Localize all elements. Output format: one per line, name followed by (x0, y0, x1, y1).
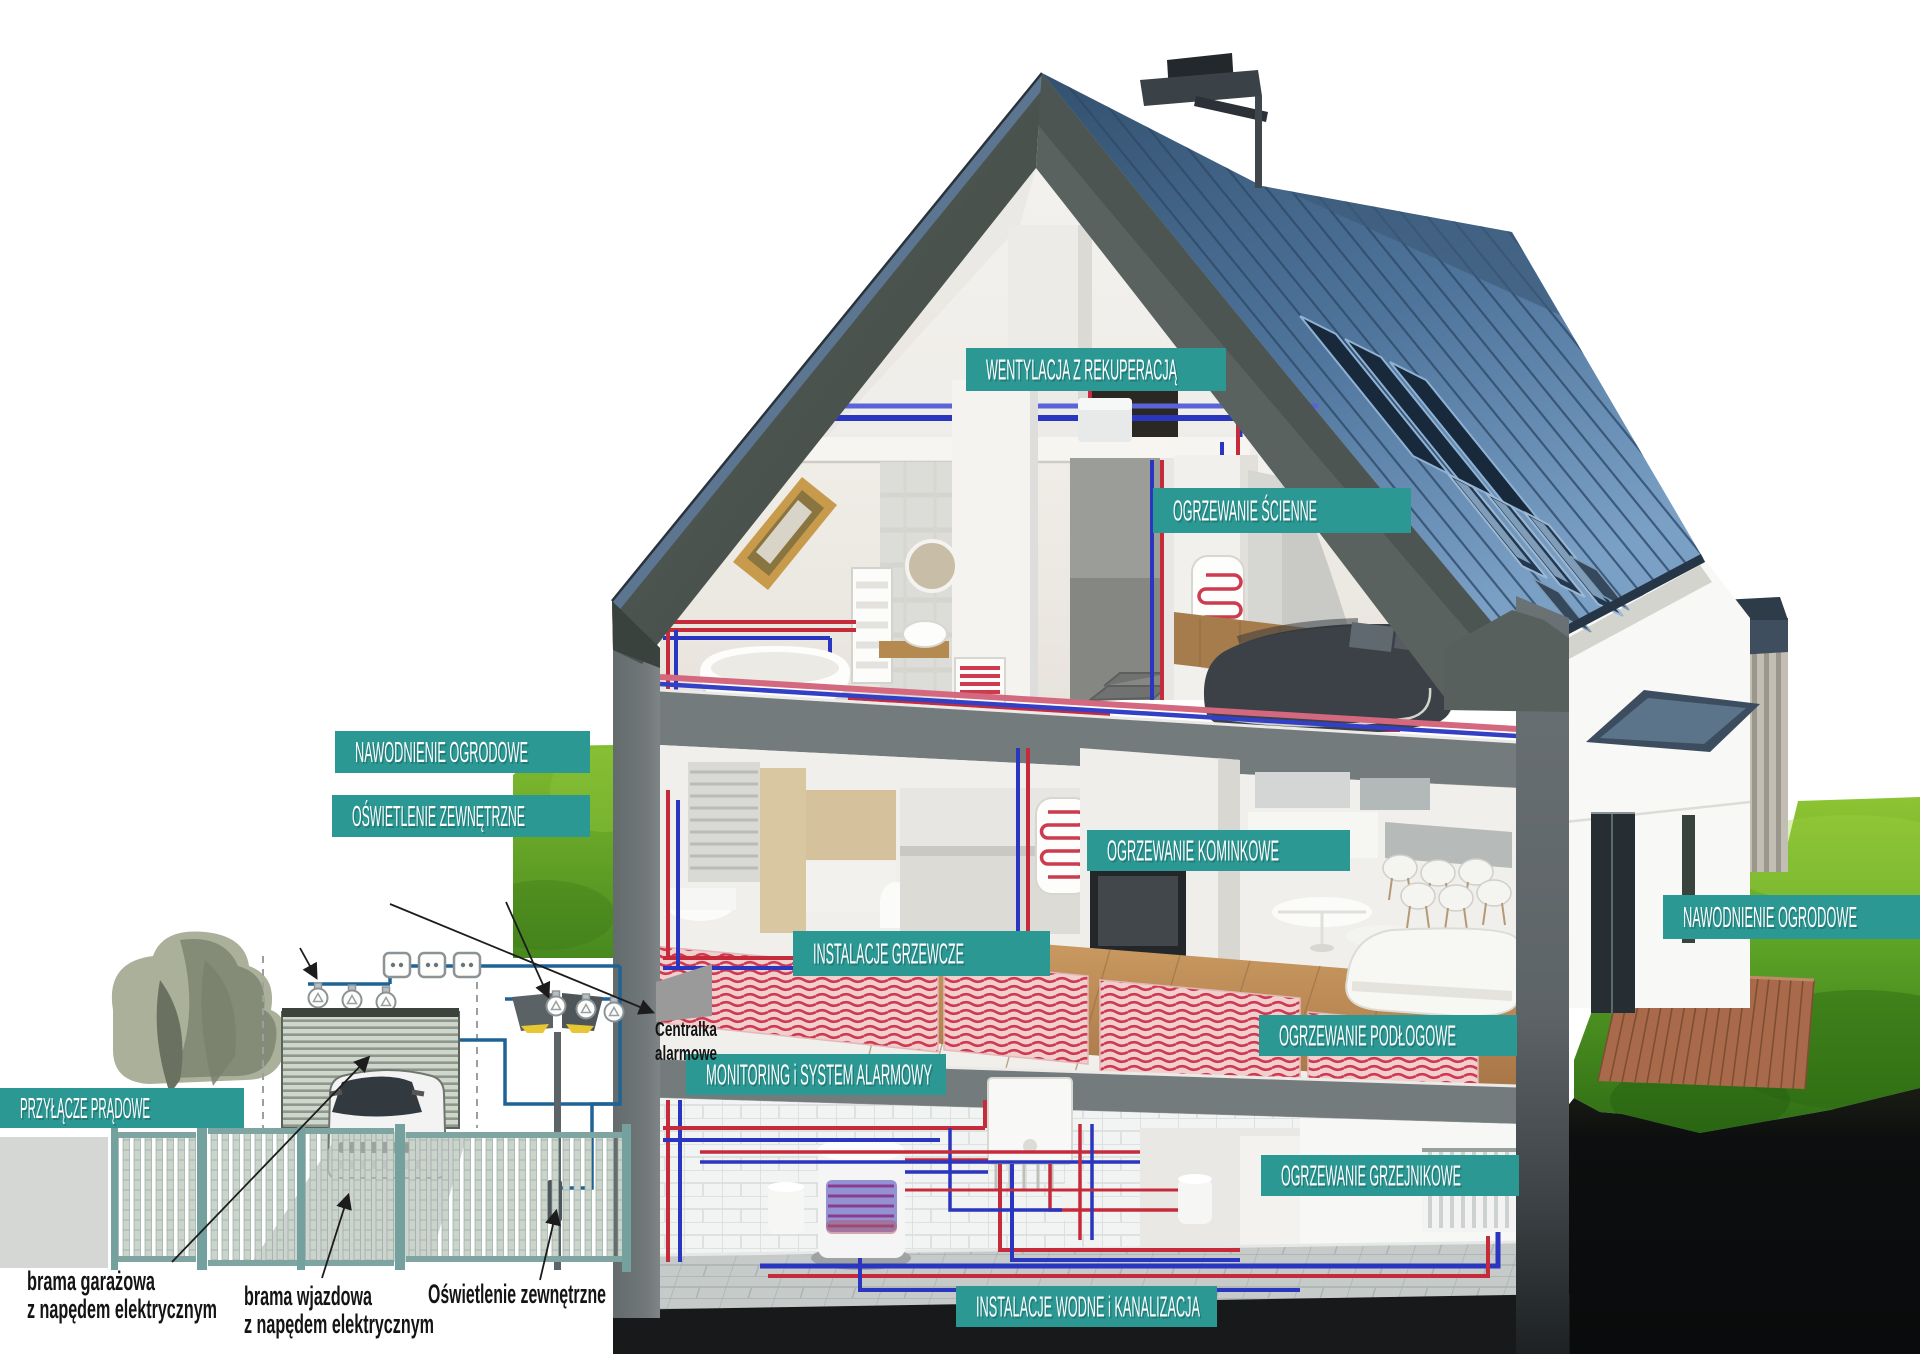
svg-text:WENTYLACJA Z REKUPERACJĄ: WENTYLACJA Z REKUPERACJĄ (986, 355, 1177, 387)
svg-text:OŚWIETLENIE ZEWNĘTRZNE: OŚWIETLENIE ZEWNĘTRZNE (352, 799, 525, 833)
svg-text:OGRZEWANIE KOMINKOWE: OGRZEWANIE KOMINKOWE (1107, 836, 1279, 868)
svg-text:Oświetlenie zewnętrzne: Oświetlenie zewnętrzne (428, 1279, 606, 1309)
svg-text:INSTALACJE GRZEWCZE: INSTALACJE GRZEWCZE (813, 939, 964, 971)
svg-text:OGRZEWANIE GRZEJNIKOWE: OGRZEWANIE GRZEJNIKOWE (1281, 1161, 1461, 1193)
svg-text:z napędem elektrycznym: z napędem elektrycznym (244, 1309, 434, 1339)
svg-text:z napędem elektrycznym: z napędem elektrycznym (27, 1294, 217, 1324)
svg-text:INSTALACJE WODNE i KANALIZACJA: INSTALACJE WODNE i KANALIZACJA (976, 1292, 1200, 1324)
svg-text:PRZYŁĄCZE PRĄDOWE: PRZYŁĄCZE PRĄDOWE (20, 1093, 150, 1125)
svg-text:NAWODNIENIE OGRODOWE: NAWODNIENIE OGRODOWE (355, 737, 528, 769)
svg-text:alarmowe: alarmowe (655, 1043, 717, 1065)
svg-text:NAWODNIENIE OGRODOWE: NAWODNIENIE OGRODOWE (1683, 902, 1857, 934)
svg-text:MONITORING i SYSTEM ALARMOWY: MONITORING i SYSTEM ALARMOWY (706, 1060, 932, 1092)
svg-text:brama garażowa: brama garażowa (27, 1266, 156, 1296)
svg-text:OGRZEWANIE PODŁOGOWE: OGRZEWANIE PODŁOGOWE (1279, 1021, 1456, 1053)
svg-text:OGRZEWANIE ŚCIENNE: OGRZEWANIE ŚCIENNE (1173, 494, 1317, 528)
svg-text:Centralka: Centralka (655, 1019, 718, 1041)
svg-text:brama wjazdowa: brama wjazdowa (244, 1281, 373, 1311)
